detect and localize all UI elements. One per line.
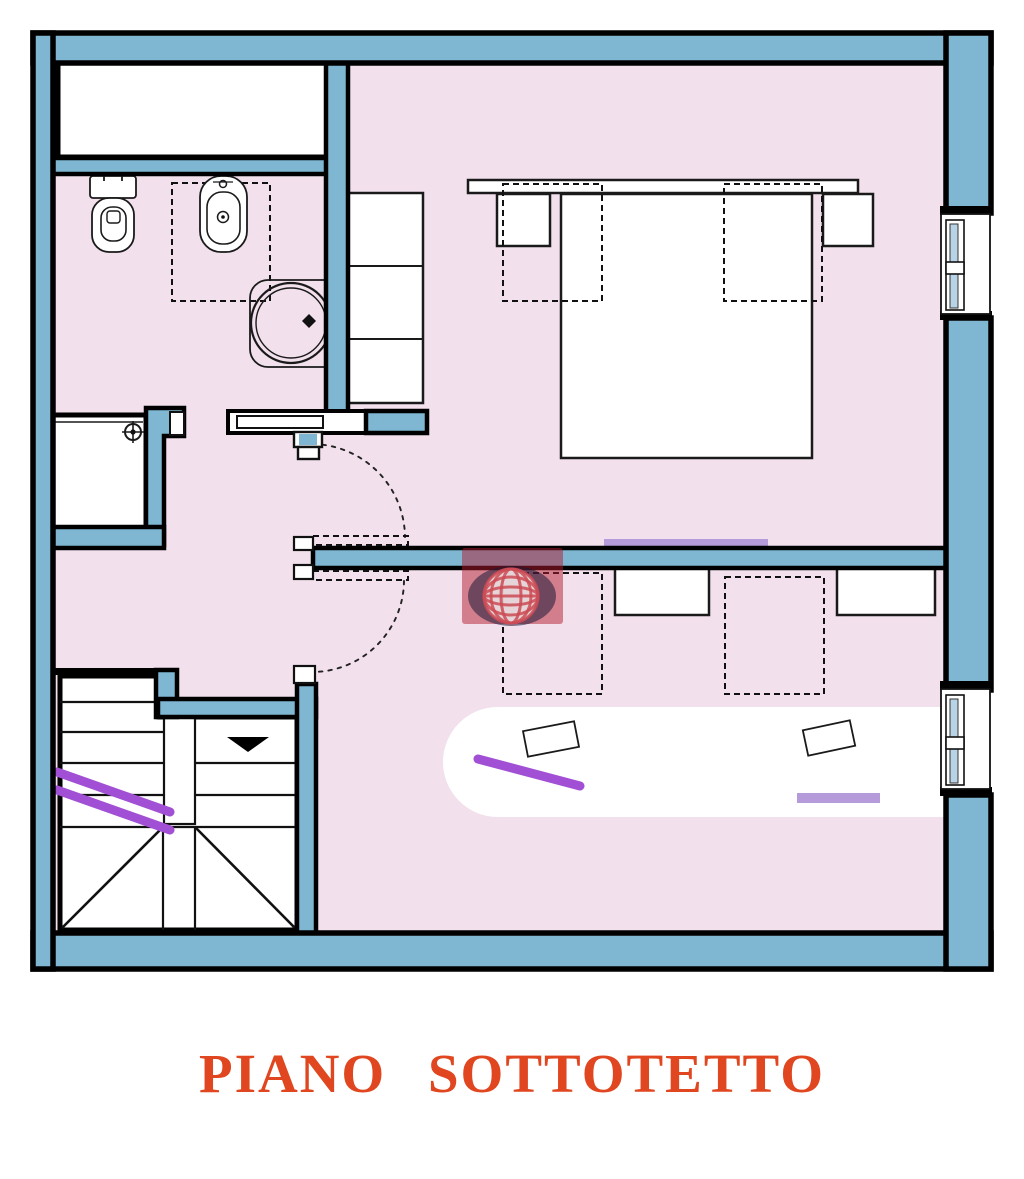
door-jamb — [294, 537, 313, 550]
wall — [326, 58, 348, 415]
page-title: PIANO SOTTOTETTO — [0, 1042, 1024, 1105]
wall — [297, 684, 316, 939]
outer-wall-left — [33, 33, 53, 969]
wall — [42, 527, 164, 548]
outer-wall-top — [33, 33, 991, 63]
wardrobe-column — [347, 193, 423, 403]
wall — [313, 548, 948, 568]
floor-plan-page: PIANO SOTTOTETTO — [0, 0, 1024, 1179]
outer-wall-right — [946, 318, 991, 690]
double-bed — [561, 194, 812, 458]
door-hinge-block — [298, 447, 319, 459]
window-glass — [950, 224, 958, 262]
toilet — [90, 171, 136, 252]
nightstand — [837, 567, 935, 615]
wall — [50, 158, 335, 174]
window-glass — [950, 745, 958, 783]
headboard-shelf — [468, 180, 858, 193]
door-jamb — [294, 666, 315, 683]
sliding-door-leaf — [237, 416, 323, 428]
agency-watermark — [462, 548, 563, 626]
window-glass — [950, 270, 958, 308]
accent-strip — [797, 793, 880, 803]
floor-plan-drawing — [0, 0, 1024, 1005]
wall-line — [45, 668, 161, 675]
wall — [158, 699, 316, 717]
door-jamb — [170, 412, 184, 435]
door-hinge-block — [299, 434, 317, 445]
door-jamb — [294, 565, 313, 579]
nightstand — [615, 567, 709, 615]
wardrobe — [347, 193, 423, 403]
outer-wall-bottom — [33, 933, 991, 969]
storage-niche — [57, 62, 330, 158]
globe-icon — [484, 569, 538, 623]
nightstand — [823, 194, 873, 246]
window-upper — [940, 206, 992, 320]
window-glass — [950, 699, 958, 737]
outer-wall-right — [946, 33, 991, 213]
outer-wall-right — [946, 795, 991, 969]
bidet — [200, 176, 247, 252]
wall — [366, 411, 427, 433]
window-lower — [940, 681, 992, 796]
shower-tray-niche — [50, 415, 146, 532]
nightstand — [497, 194, 550, 246]
